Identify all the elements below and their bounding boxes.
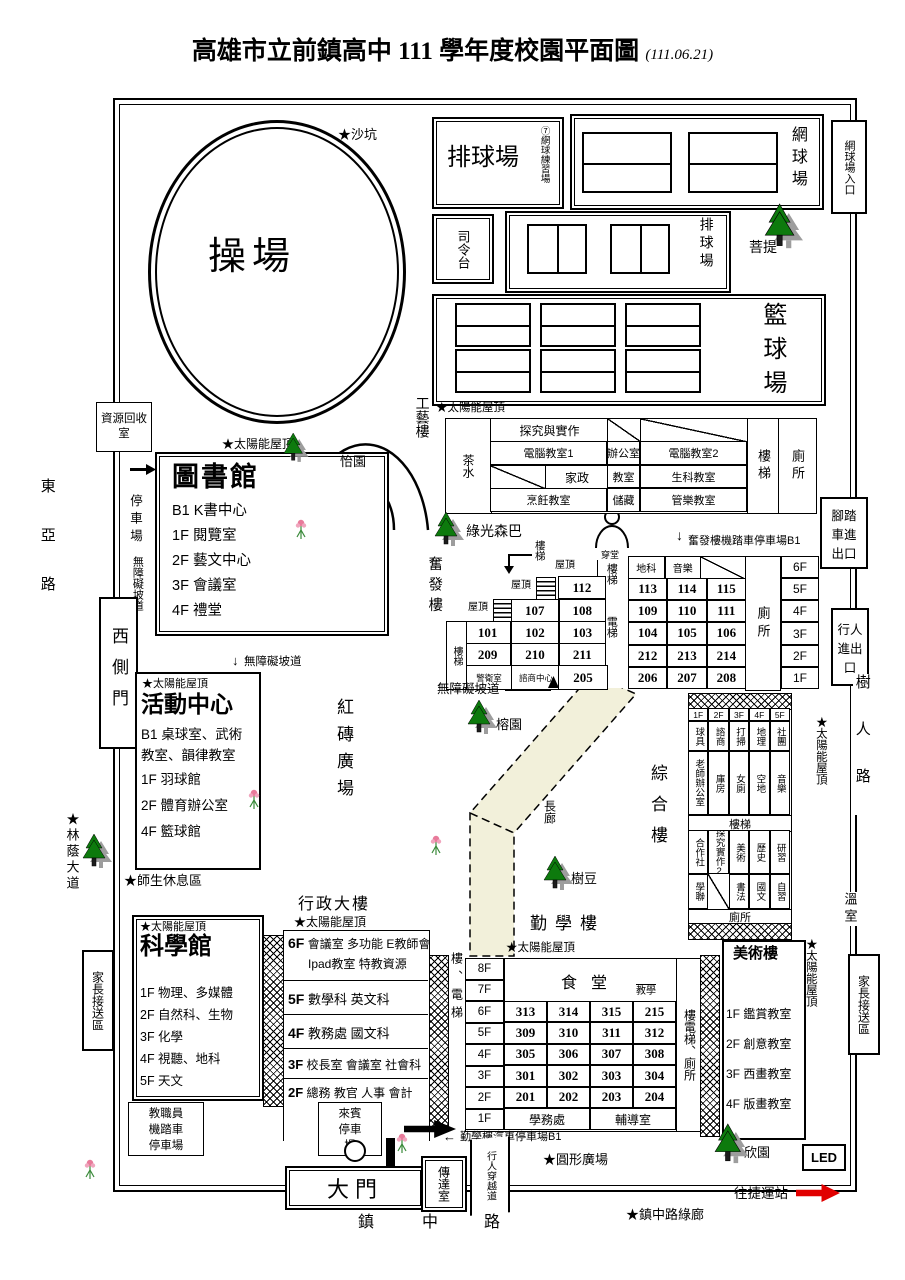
cell: 2F <box>781 645 819 667</box>
qinxue-rooms: 3133143152153093103113123053063073083013… <box>504 1001 676 1108</box>
cell: 209 <box>464 643 511 666</box>
tennis-label: 網球場 <box>788 126 806 192</box>
cell: 111 <box>707 600 746 622</box>
roof-label: 屋頂 <box>511 580 531 591</box>
fenfa-stairs-callout: 樓梯 <box>533 540 545 561</box>
cell: 107 <box>511 599 559 622</box>
fenfa-parking-arrow: ↓ <box>676 528 683 544</box>
gongyi-stairs: 樓梯 <box>747 418 780 514</box>
library-floor: B1 K書中心 <box>172 503 247 519</box>
cell: 生科教室 <box>640 465 747 488</box>
cell: 312 <box>633 1022 676 1043</box>
science-floor: 2F 自然科、生物 <box>140 1008 233 1022</box>
cell: 5F <box>770 708 790 721</box>
stairs-lift-toilet-label: 樓電梯、廁所 <box>682 1009 699 1081</box>
page-title: 高雄市立前鎮高中 111 學年度校園平面圖 (111.06.21) <box>0 38 905 66</box>
stairwell-icon <box>493 599 512 622</box>
reception-label: 傳達室 <box>436 1166 453 1202</box>
xin-garden-label: 欣園 <box>744 1146 770 1161</box>
basketball-label: 籃球場 <box>758 302 785 404</box>
cell: 1F <box>688 708 708 721</box>
activity-floor: 1F 羽球館 <box>141 772 201 787</box>
cell: 美術 <box>729 830 749 874</box>
flower-icon <box>85 1160 95 1179</box>
cell: 女廁 <box>729 751 749 815</box>
zonghe-r4: 學聯書法國文自習 <box>688 874 790 909</box>
cell: 110 <box>667 600 706 622</box>
volleyball2-court-a <box>527 224 587 274</box>
cell: 打掃 <box>729 721 749 751</box>
admin-f3: 3F 校長室 會議室 社會科 <box>288 1058 421 1073</box>
admin-row-divider <box>283 1014 428 1015</box>
page-title-date: (111.06.21) <box>645 47 713 63</box>
fenfa-core-stairs: 樓梯 <box>605 563 617 585</box>
bb-court <box>625 349 701 393</box>
gongyi-r1c1: 探究與實作 <box>490 418 609 443</box>
roof-label: 屋頂 <box>468 602 488 613</box>
staff-parking: 教職員機踏車停車場 <box>128 1102 204 1156</box>
bb-court <box>625 303 701 347</box>
science-floor: 4F 視聽、地科 <box>140 1052 221 1066</box>
admin-f2: 2F 總務 教官 人事 會計 <box>288 1086 413 1101</box>
zonghe-r2: 老師辦公室庫房女廁空地音樂 <box>688 751 790 815</box>
solar-roof-label: ★太陽能屋頂 <box>506 942 575 955</box>
floor-label: 4F <box>288 1025 304 1041</box>
podium: 司令台 <box>432 214 494 284</box>
round-plaza-label: ★圓形廣場 <box>543 1153 608 1168</box>
cell: 106 <box>707 622 746 644</box>
zonghe-r4-diag <box>708 874 729 909</box>
cell: 音樂 <box>665 556 702 579</box>
cell: 地科 <box>628 556 665 579</box>
room-label: 諮商中心 <box>519 672 553 684</box>
cell: 管樂教室 <box>640 488 747 512</box>
family-pickup-left: 家長接送區 <box>82 950 114 1051</box>
main-gate-label: 大門 <box>327 1172 383 1204</box>
cell: 114 <box>667 578 706 600</box>
main-gate: 大門 <box>285 1166 425 1210</box>
cell: 3F <box>781 622 819 644</box>
cell: 215 <box>633 1001 676 1022</box>
admin-f4: 4F 教務處 國文科 <box>288 1026 390 1042</box>
rest-area-label: ★師生休息區 <box>124 874 202 889</box>
podium-label: 司令台 <box>454 230 473 269</box>
cell: 8F <box>465 958 504 980</box>
cell: 5F <box>465 1023 504 1045</box>
cell: 208 <box>707 667 746 689</box>
line: 教職員 <box>149 1105 184 1121</box>
cell: 輔導室 <box>590 1108 676 1130</box>
cell: 國文 <box>749 874 769 909</box>
cell: 308 <box>633 1044 676 1065</box>
art-floor: 2F 創意教室 <box>726 1038 791 1051</box>
reception-box: 傳達室 <box>421 1156 467 1212</box>
cell: 2F <box>465 1087 504 1109</box>
line: 出口 <box>831 543 856 562</box>
cell: 309 <box>504 1022 547 1043</box>
fenfa-row-112: 112 <box>558 576 606 599</box>
cell: 烹飪教室 <box>490 488 607 512</box>
cell: 儲藏 <box>607 488 640 512</box>
cell: 歷史 <box>749 830 769 874</box>
library-floor: 2F 藝文中心 <box>172 553 251 569</box>
cell: 204 <box>633 1087 676 1108</box>
bb-court <box>540 303 616 347</box>
cell: 電腦教室2 <box>640 441 747 465</box>
gongyi-side-label: 茶水 <box>460 454 477 478</box>
art-floor: 1F 鑑賞教室 <box>726 1008 791 1021</box>
room-label: 會議室 多功能 E教師會 <box>308 937 431 951</box>
admin-name: 行政大樓 <box>298 896 370 914</box>
floor-label: 5F <box>288 991 304 1007</box>
zonghe-r3: 合作社探究實作2美術歷史研習 <box>688 830 790 874</box>
floor-label: 2F <box>288 1085 303 1100</box>
gongyi-r3-diag <box>490 465 547 490</box>
science-name: 科學館 <box>140 934 212 961</box>
south-road-char: 鎮 <box>358 1214 374 1232</box>
cell: 307 <box>590 1044 633 1065</box>
room-label: 校長室 會議室 社會科 <box>307 1058 422 1072</box>
cell: 303 <box>590 1065 633 1086</box>
east-road-label: 樹人路 <box>853 674 870 815</box>
solar-roof-label: ★太陽能屋頂 <box>814 716 827 785</box>
cell: 社團 <box>770 721 790 751</box>
net-line <box>583 163 671 165</box>
greenhouse-label: 溫室 <box>842 892 857 926</box>
callout-line <box>508 554 510 566</box>
fenfa-left-stairs: 樓梯 <box>446 621 467 690</box>
cell: 214 <box>707 645 746 667</box>
room-label: 205 <box>573 670 593 686</box>
library-floor: 3F 會議室 <box>172 578 236 594</box>
solar-roof-label: ★太陽能屋頂 <box>142 678 208 690</box>
cell: 合作社 <box>688 830 708 874</box>
ramp-label: 無障礙坡道 <box>437 682 500 696</box>
cell: 學務處 <box>504 1108 590 1130</box>
toilet-label: 廁所 <box>788 449 807 483</box>
recycle-label: 資源回收室 <box>97 412 151 442</box>
cell: 辦公室 <box>607 441 640 465</box>
south-road-char: 中 <box>422 1214 438 1232</box>
bb-court <box>455 303 531 347</box>
cell: 諮商 <box>708 721 728 751</box>
callout-line <box>508 554 532 556</box>
fenfa-room-205: 205 <box>558 665 608 690</box>
cell: 108 <box>559 599 607 622</box>
admin-row-divider <box>283 1078 428 1079</box>
line: 車進 <box>831 524 856 543</box>
library-floor: 1F 閱覽室 <box>172 528 236 544</box>
mid-line <box>456 325 530 327</box>
cell: 球具 <box>688 721 708 751</box>
stairs-label: 樓梯 <box>449 646 464 666</box>
gongyi-r2: 電腦教室1辦公室電腦教室2 <box>490 441 747 465</box>
line: 來賓 <box>339 1105 362 1121</box>
cell: 302 <box>547 1065 590 1086</box>
zonghe-r1: 球具諮商打掃地理社團 <box>688 721 790 751</box>
cell: 112 <box>558 576 606 599</box>
cell: 313 <box>504 1001 547 1022</box>
mid-line <box>456 371 530 373</box>
qinxue-floors: 8F7F6F5F4F3F2F1F <box>465 958 504 1130</box>
hall-label: 食堂 <box>561 969 621 993</box>
cell: 自習 <box>770 874 790 909</box>
cell: 310 <box>547 1022 590 1043</box>
crossing-label: 行人穿越道 <box>483 1150 498 1201</box>
family-pickup-label: 家長接送區 <box>90 971 107 1031</box>
cell: 304 <box>633 1065 676 1086</box>
zonghe-name: 綜合樓 <box>648 764 667 857</box>
tennis-court-b <box>688 132 778 193</box>
cell: 1F <box>781 667 819 689</box>
art-floor: 3F 西畫教室 <box>726 1068 791 1081</box>
tree-bean-label: 樹豆 <box>571 872 597 887</box>
zonghe-hatch-bottom <box>688 923 792 940</box>
art-floor: 4F 版畫教室 <box>726 1098 791 1111</box>
room-label: 家政 <box>565 469 589 486</box>
rong-garden-label: 榕園 <box>496 718 522 733</box>
crossing-ribbon: 行人穿越道 <box>470 1136 510 1215</box>
floor-label: 6F <box>288 935 304 951</box>
gongyi-r4: 烹飪教室儲藏管樂教室 <box>490 488 747 512</box>
cell: 3F <box>729 708 749 721</box>
solar-roof-label: ★太陽能屋頂 <box>140 921 206 933</box>
cell: 書法 <box>729 874 749 909</box>
gongyi-r1-diag2 <box>640 418 749 443</box>
cell: 7F <box>465 980 504 1002</box>
cell: 研習 <box>770 830 790 874</box>
solar-roof-label: ★太陽能屋頂 <box>222 438 294 451</box>
fenfa-row-209: 209210211 <box>464 643 606 666</box>
west-gate: 西側門 <box>99 597 138 749</box>
cell: 4F <box>781 600 819 622</box>
net-line <box>557 225 559 273</box>
science-floor: 1F 物理、多媒體 <box>140 986 233 1000</box>
bb-court <box>455 349 531 393</box>
gongyi-r3c1: 家政 <box>545 465 609 490</box>
tennis-entry-gate: 網球場入口 <box>831 120 867 214</box>
admin-hatch-right <box>427 955 449 1132</box>
gongyi-side: 茶水 <box>445 418 492 514</box>
family-pickup-label: 家長接送區 <box>856 975 873 1035</box>
west-gate-label: 西側門 <box>106 627 131 720</box>
net-line <box>640 225 642 273</box>
activity-floor: 2F 體育辦公室 <box>141 798 228 813</box>
cell: 學聯 <box>688 874 708 909</box>
page-title-text: 高雄市立前鎮高中 111 學年度校園平面圖 <box>192 38 639 65</box>
lin-avenue-label: ★林蔭大道 <box>64 812 79 892</box>
fenfa-row-107: 107108 <box>511 599 606 622</box>
cell: 6F <box>781 556 819 578</box>
admin-row-divider <box>283 980 428 981</box>
recycle-room: 資源回收室 <box>96 402 152 452</box>
family-pickup-right: 家長接送區 <box>848 954 880 1055</box>
net-line <box>689 163 777 165</box>
to-mrt-label: 往捷運站 <box>734 1186 788 1201</box>
cell: 104 <box>628 622 667 644</box>
library-name: 圖書館 <box>172 462 259 492</box>
fenfa-parking-label: 奮發樓機踏車停車場B1 <box>688 535 800 547</box>
line: 停車場 <box>149 1137 184 1153</box>
cell: 207 <box>667 667 706 689</box>
green-corridor-label: ★鎮中路綠廊 <box>626 1208 704 1223</box>
gongyi-toilet: 廁所 <box>778 418 817 514</box>
room-label: 探究與實作 <box>519 422 579 439</box>
stairwell-icon <box>536 577 556 600</box>
science-floor: 3F 化學 <box>140 1030 183 1044</box>
cell: 探究實作2 <box>708 830 728 874</box>
fenfa-rooms: 1131141151091101111041051062122132142062… <box>628 578 746 689</box>
cell: 6F <box>465 1001 504 1023</box>
line: 口 <box>844 657 857 676</box>
qinxue-hall-sub: 教學 <box>636 984 656 997</box>
cell: 315 <box>590 1001 633 1022</box>
mid-line <box>626 325 700 327</box>
led-label: LED <box>811 1150 837 1165</box>
art-name: 美術樓 <box>733 946 778 963</box>
cell: 206 <box>628 667 667 689</box>
cell: 105 <box>667 622 706 644</box>
cell: 311 <box>590 1022 633 1043</box>
volleyball1-sub-label: ⑦網球練習場 <box>538 126 549 183</box>
cell: 1F <box>465 1109 504 1131</box>
south-road-char: 路 <box>484 1214 500 1232</box>
cell: 305 <box>504 1044 547 1065</box>
red-brick-plaza-label: 紅磚廣場 <box>334 698 353 806</box>
cell: 4F <box>749 708 769 721</box>
fenfa-row-101: 101102103 <box>464 621 606 644</box>
yi-garden-label: 怡園 <box>340 455 366 470</box>
fenfa-core-lift: 電梯 <box>605 616 617 638</box>
science-floor: 5F 天文 <box>140 1074 183 1088</box>
cell: 101 <box>464 621 511 644</box>
cell: 213 <box>667 645 706 667</box>
bodhi-label: 菩提 <box>749 240 777 256</box>
green-light-label: 綠光森巴 <box>466 524 522 540</box>
line: 腳踏 <box>831 505 856 524</box>
west-road-label: 東亞路 <box>38 478 55 625</box>
ramp-arrow-bar <box>130 468 146 471</box>
qinxue-left-col: 樓、電梯 <box>449 952 462 1024</box>
cell: 103 <box>559 621 606 644</box>
cell: 202 <box>547 1087 590 1108</box>
ramp-arrow: ↓ <box>232 654 239 669</box>
cell: 5F <box>781 578 819 600</box>
room-label: 數學科 英文科 <box>308 992 390 1007</box>
gongyi-name: 工藝樓 <box>414 396 430 438</box>
zonghe-floors: 1F2F3F4F5F <box>688 708 790 721</box>
bb-court <box>540 349 616 393</box>
room-label: 總務 教官 人事 會計 <box>307 1086 413 1100</box>
cell: 306 <box>547 1044 590 1065</box>
cell: 地理 <box>749 721 769 751</box>
solar-roof-label: ★太陽能屋頂 <box>436 402 505 415</box>
cell: 3F <box>465 1066 504 1088</box>
stairs-label: 樓梯 <box>754 449 773 483</box>
tennis-court-a <box>582 132 672 193</box>
admin-row-divider <box>283 1048 428 1049</box>
cell: 102 <box>511 621 558 644</box>
long-corridor-label: 長廊 <box>542 800 555 824</box>
activity-floor: 4F 籃球館 <box>141 824 201 839</box>
ramp-line <box>505 689 551 691</box>
volleyball1-label: 排球場 <box>447 145 519 172</box>
admin-f6: 6F 會議室 多功能 E教師會 <box>288 936 430 952</box>
field-label: 操場 <box>208 236 296 279</box>
cell: 301 <box>504 1065 547 1086</box>
cell: 空地 <box>749 751 769 815</box>
campus-map: 高雄市立前鎮高中 111 學年度校園平面圖 (111.06.21) 操場 ★沙坑… <box>0 0 905 1280</box>
parking-lot-label: 停車場 <box>128 494 142 547</box>
cell: 115 <box>707 578 746 600</box>
fenfa-toilet: 廁所 <box>745 556 781 691</box>
cell: 210 <box>511 643 558 666</box>
entrance-fountain <box>344 1140 366 1162</box>
library-floor: 4F 禮堂 <box>172 603 222 619</box>
fenfa-name: 奮發樓 <box>426 556 442 618</box>
qinxue-name: 勤學樓 <box>530 914 605 933</box>
mid-line <box>626 371 700 373</box>
qinxue-art-hatch <box>700 955 720 1137</box>
cell: 電腦教室1 <box>490 441 607 465</box>
cell: 4F <box>465 1044 504 1066</box>
cell: 老師辦公室 <box>688 751 708 815</box>
cell: 113 <box>628 578 667 600</box>
activity-floor: B1 桌球室、武術教室、韻律教室 <box>141 725 251 767</box>
roof-label: 屋頂 <box>555 560 575 571</box>
line: 停車 <box>339 1121 362 1137</box>
cell: 201 <box>504 1087 547 1108</box>
admin-f5: 5F 數學科 英文科 <box>288 992 390 1008</box>
cell: 109 <box>628 600 667 622</box>
volleyball2-court-b <box>610 224 670 274</box>
led-sign: LED <box>802 1144 846 1171</box>
admin-hatch-left <box>263 935 284 1107</box>
cell: 212 <box>628 645 667 667</box>
ramp-label: 無障礙坡道 <box>244 656 302 669</box>
gongyi-r3: 教室生科教室 <box>607 465 747 488</box>
tennis-entry-label: 網球場入口 <box>841 140 857 195</box>
solar-roof-label: ★太陽能屋頂 <box>804 938 817 1007</box>
mid-line <box>541 371 615 373</box>
fenfa-tower-label: 穿堂 <box>601 550 619 560</box>
admin-f6b: Ipad教室 特教資源 <box>308 958 407 971</box>
cell: 音樂 <box>770 751 790 815</box>
cell: 203 <box>590 1087 633 1108</box>
cell: 教室 <box>607 465 640 488</box>
cell: 211 <box>559 643 606 666</box>
cell: 2F <box>708 708 728 721</box>
line: 進出 <box>837 638 862 657</box>
tree-icon <box>83 834 112 868</box>
sandpit-label: ★沙坑 <box>338 128 377 143</box>
fenfa-floors: 6F5F4F3F2F1F <box>781 556 819 689</box>
gongyi-r1-diag <box>607 418 642 443</box>
floor-label: 3F <box>288 1057 303 1072</box>
cell: 庫房 <box>708 751 728 815</box>
cell: 314 <box>547 1001 590 1022</box>
bike-gate: 腳踏車進出口 <box>820 497 868 569</box>
line: 機踏車 <box>149 1121 184 1137</box>
room-label: 教務處 國文科 <box>308 1026 390 1041</box>
activity-name: 活動中心 <box>141 692 233 718</box>
mid-line <box>541 325 615 327</box>
toilet-label: 廁所 <box>754 606 773 642</box>
qinxue-f1: 學務處輔導室 <box>504 1108 676 1130</box>
fenfa-head: 地科音樂 <box>628 556 701 579</box>
volleyball2-label: 排球場 <box>698 217 714 271</box>
solar-roof-label: ★太陽能屋頂 <box>294 916 366 929</box>
